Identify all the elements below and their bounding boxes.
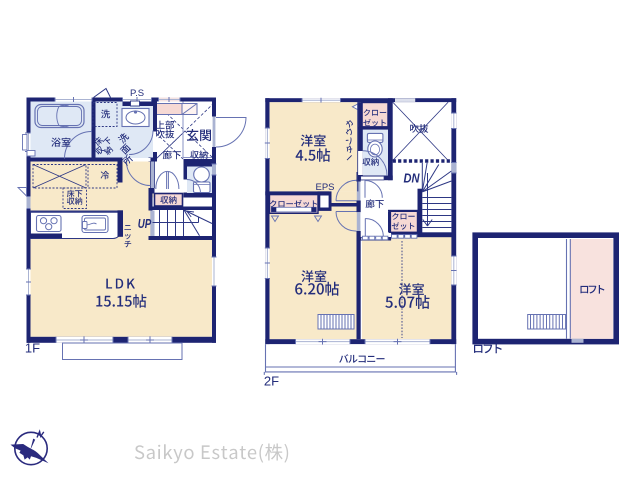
svg-text:2F: 2F [264, 374, 279, 389]
svg-text:P.S: P.S [130, 88, 144, 99]
svg-text:DN: DN [404, 172, 421, 186]
svg-text:1F: 1F [25, 341, 40, 356]
svg-text:UP: UP [138, 217, 152, 231]
svg-text:EPS: EPS [315, 182, 334, 193]
